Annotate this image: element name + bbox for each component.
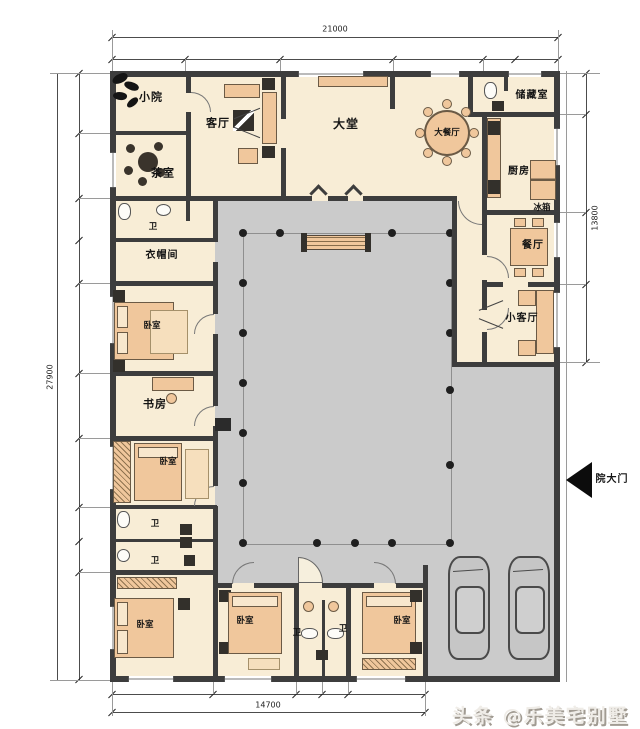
column [239, 539, 247, 547]
dining-chair [442, 156, 452, 166]
sink [492, 101, 504, 111]
column [239, 429, 247, 437]
column [446, 461, 454, 469]
window [110, 152, 116, 188]
extension-line [79, 283, 110, 284]
car-hood [453, 569, 483, 572]
extension-line [560, 73, 600, 74]
extension-line [112, 682, 113, 716]
wall [482, 215, 487, 255]
wall [213, 334, 218, 406]
room-label-dining: 餐厅 [522, 241, 544, 251]
extension-line [425, 682, 426, 716]
gate-arrow-icon [566, 462, 592, 498]
window [430, 71, 460, 77]
nightstand [113, 360, 125, 372]
washer [180, 537, 192, 548]
wardrobe [113, 441, 131, 503]
dimension-value-left: 27900 [46, 362, 55, 391]
dining-chair [423, 107, 433, 117]
wall [110, 238, 217, 242]
fridge [530, 160, 556, 200]
side-table [262, 78, 275, 90]
pillow [366, 596, 412, 607]
pillow [232, 596, 278, 607]
wall [423, 565, 428, 676]
sofa [536, 290, 554, 354]
desk [152, 377, 194, 391]
column [239, 229, 247, 237]
car-hood [513, 569, 543, 572]
wall [186, 71, 191, 93]
pillow [117, 630, 128, 654]
room-label-bath: 卫 [339, 625, 348, 634]
wall [281, 148, 286, 201]
dining-chair [442, 99, 452, 109]
column [239, 379, 247, 387]
wall [328, 196, 348, 201]
stove [488, 180, 500, 194]
room-label-bedroom: 卧室 [236, 617, 253, 626]
room-label-cloak-room: 衣帽间 [146, 251, 179, 261]
extension-line [50, 680, 110, 681]
extension-line [560, 212, 586, 213]
sideboard [318, 76, 388, 87]
corner-column [215, 418, 231, 431]
room-label-bedroom: 卧室 [159, 458, 176, 467]
room-label-bedroom: 卧室 [136, 621, 153, 630]
nightstand [178, 598, 190, 610]
room-label-living-room: 客厅 [206, 118, 230, 129]
sink [303, 601, 314, 612]
armchair [238, 148, 258, 164]
column [388, 539, 396, 547]
dimension-line [79, 73, 80, 680]
column [276, 229, 284, 237]
wardrobe [362, 658, 416, 670]
toilet [484, 82, 497, 99]
column [239, 479, 247, 487]
dining-chair [469, 128, 479, 138]
sofa [518, 290, 536, 306]
sink [328, 601, 339, 612]
room-label-tea-room: 茶室 [151, 168, 175, 179]
room-label-bath: 卫 [149, 223, 158, 232]
dimension-line [112, 37, 558, 38]
toilet [301, 628, 318, 639]
wall [110, 281, 217, 286]
column [446, 539, 454, 547]
room-label-bath: 卫 [293, 629, 302, 638]
room-label-bath: 卫 [151, 520, 160, 529]
room-label-great-hall: 大堂 [333, 118, 359, 130]
site-boundary-line [566, 71, 567, 682]
dimension-line [586, 73, 587, 363]
extension-line [560, 114, 586, 115]
pillow [117, 306, 128, 328]
car-roof [455, 586, 485, 634]
room-label-small-living: 小客厅 [506, 314, 539, 324]
extension-line [393, 59, 394, 71]
extension-line [560, 284, 586, 285]
dimension-value-top: 21000 [320, 25, 349, 34]
extension-line [322, 682, 323, 694]
extension-line [79, 507, 110, 508]
gate-label: 院大门 [596, 475, 629, 485]
extension-line [213, 682, 214, 694]
washer [180, 524, 192, 535]
window [554, 292, 560, 348]
chair [532, 218, 544, 227]
entrance-steps [306, 235, 366, 250]
extension-line [280, 59, 281, 71]
toilet [118, 203, 131, 220]
wall [110, 676, 560, 682]
step-post [365, 233, 371, 252]
sink [156, 204, 171, 216]
nightstand [410, 590, 422, 602]
pillow [117, 332, 128, 354]
chair [514, 268, 526, 277]
room-label-bedroom: 卧室 [143, 322, 160, 331]
chair [532, 268, 544, 277]
dimension-line [112, 694, 425, 695]
extension-line [79, 438, 110, 439]
wall [110, 196, 312, 201]
wall [213, 426, 218, 486]
wall [110, 131, 188, 135]
extension-line [79, 572, 110, 573]
desk-chair [166, 393, 177, 404]
rug [248, 658, 280, 670]
extension-line [348, 682, 349, 694]
column [446, 386, 454, 394]
car-icon [508, 556, 550, 660]
column [388, 229, 396, 237]
column [239, 329, 247, 337]
dining-chair [461, 148, 471, 158]
watermark-text: 头条 @乐美宅别墅 [452, 701, 629, 728]
wall [213, 262, 218, 314]
wall [213, 196, 218, 242]
window [128, 676, 174, 682]
veranda-outline [243, 233, 452, 545]
room-label-bedroom: 卧室 [393, 617, 410, 626]
nightstand [410, 642, 422, 654]
room-label-fridge: 冰箱 [533, 204, 550, 213]
extension-line [185, 59, 186, 71]
wall [390, 71, 395, 109]
room-label-small-yard: 小院 [139, 92, 163, 103]
extension-line [560, 362, 600, 363]
sofa [262, 92, 277, 144]
wall [487, 282, 503, 287]
wall [110, 371, 217, 376]
wall [281, 71, 286, 119]
sofa [224, 84, 260, 98]
tea-chair [124, 166, 133, 175]
wardrobe [117, 577, 177, 589]
dimension-line [57, 73, 58, 680]
cabinet [184, 555, 195, 566]
nightstand [113, 290, 125, 302]
extension-line [79, 133, 110, 134]
car-icon [448, 556, 490, 660]
pillow [117, 602, 128, 626]
window [356, 676, 406, 682]
room-label-big-dining: 大餐厅 [434, 129, 460, 138]
wall [186, 112, 191, 201]
dining-chair [415, 128, 425, 138]
dimension-value-right: 13800 [591, 203, 600, 232]
wall [110, 570, 215, 575]
wall [452, 196, 457, 367]
wall [363, 196, 452, 201]
dining-chair [423, 148, 433, 158]
wall [452, 362, 560, 367]
tea-chair [138, 177, 147, 186]
extension-line [296, 682, 297, 694]
wall [213, 570, 218, 676]
room-label-kitchen: 厨房 [508, 167, 530, 177]
wall [110, 539, 217, 542]
wall [528, 282, 560, 287]
tea-chair [126, 144, 135, 153]
window [554, 222, 560, 258]
wall [186, 201, 190, 221]
extension-line [483, 59, 484, 71]
window [224, 676, 272, 682]
room-label-study: 书房 [143, 399, 167, 410]
sink [117, 549, 130, 562]
car-roof [515, 586, 545, 634]
rug [150, 310, 188, 354]
tea-chair [154, 142, 163, 151]
side-table [262, 146, 275, 158]
dimension-value-bottom: 14700 [253, 701, 282, 710]
dining-chair [461, 107, 471, 117]
extension-line [558, 30, 559, 71]
sofa [518, 340, 536, 356]
toilet [117, 511, 130, 528]
cabinet [316, 650, 328, 660]
column [351, 539, 359, 547]
column [313, 539, 321, 547]
window [508, 71, 542, 77]
wall [322, 600, 325, 676]
floor-plan-canvas: 小院 茶室 客厅 大堂 大餐厅 储藏室 厨房 冰箱 餐厅 小客厅 卫 衣帽间 卧… [0, 0, 640, 729]
dimension-line [112, 59, 558, 60]
stove [488, 121, 500, 135]
step-post [301, 233, 307, 252]
dimension-line [112, 712, 425, 713]
rug [185, 449, 209, 499]
extension-line [79, 198, 110, 199]
extension-line [112, 30, 113, 71]
extension-line [50, 73, 110, 74]
extension-line [79, 373, 110, 374]
room-label-storage: 储藏室 [516, 91, 549, 101]
chair [514, 218, 526, 227]
room-label-bath: 卫 [151, 557, 160, 566]
wall [254, 583, 298, 588]
column [239, 279, 247, 287]
wall [482, 332, 487, 362]
